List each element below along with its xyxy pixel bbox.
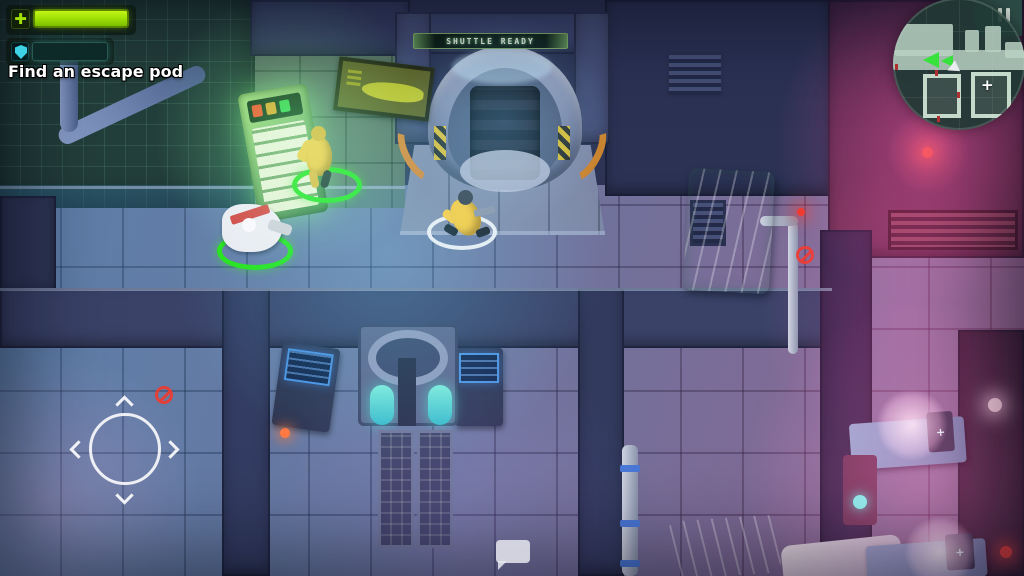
blue-tarp-crate (666, 514, 782, 576)
hazard-stripe-left (434, 126, 446, 160)
schematic-line (348, 69, 362, 74)
server-crate-left (271, 341, 340, 432)
monitor-light (853, 495, 867, 509)
minimap-door-marker (957, 92, 960, 98)
ship-schematic-display (333, 56, 435, 121)
wall-orange-light (280, 428, 290, 438)
shield-glyph (15, 45, 27, 59)
medbay-bed-2: + (865, 528, 992, 576)
wall-vertical-left (222, 288, 270, 576)
floor-grate-right (417, 430, 453, 548)
wall-top-mid (250, 0, 410, 56)
wall-vent-pink (888, 210, 1018, 250)
floor-grate-left (378, 430, 414, 548)
minimap-room-stub (965, 30, 979, 52)
hazard-stripe-right (558, 126, 570, 160)
green-tarp-crate (683, 168, 775, 294)
pipe-band (620, 520, 640, 527)
shuttle-ready-label: SHUTTLE READY (446, 37, 535, 46)
schematic-line (347, 75, 361, 80)
wall-vent (666, 52, 724, 98)
bed-pillow: + (926, 411, 955, 453)
wall-left-door (0, 196, 56, 296)
ship-silhouette (361, 79, 425, 104)
robot-sensor (242, 218, 256, 232)
virtual-joystick[interactable] (89, 413, 161, 485)
wall-vertical-right (578, 288, 624, 576)
medical-cross-label: + (955, 545, 965, 559)
game-viewport: SHUTTLE READY + + (0, 0, 1024, 576)
pipe-band (620, 560, 640, 567)
alarm-lamp-small (797, 208, 805, 216)
minimap-room-stub (985, 26, 1001, 52)
no-entry-icon (155, 386, 173, 404)
objective-marker-icon: + (981, 76, 994, 94)
player-character (436, 182, 494, 244)
server-grille (284, 348, 334, 386)
pipe-wall (788, 222, 798, 354)
plus-glyph: ✚ (14, 10, 27, 28)
player-hat (458, 190, 473, 205)
utility-robot (220, 196, 294, 258)
shield-bar (32, 42, 108, 61)
engineer-helmet (311, 126, 326, 141)
medbay-monitor (843, 455, 877, 525)
coolant-tank-right (428, 385, 452, 425)
minimap-door-marker (895, 64, 898, 70)
coolant-tank-left (370, 385, 394, 425)
shield-icon (11, 42, 29, 61)
player-arrow-icon (923, 52, 939, 68)
bright-wall-light (988, 398, 1002, 412)
no-entry-icon (796, 246, 814, 264)
shuttle-ready-sign: SHUTTLE READY (413, 33, 568, 49)
minimap-room-outline (923, 74, 961, 118)
console-amber-light (265, 102, 277, 116)
machine-channel (398, 358, 416, 426)
bed-pillow: + (945, 533, 975, 571)
alarm-lamp (922, 147, 933, 158)
schematic-line (346, 81, 360, 86)
server-grille (459, 353, 499, 383)
health-bar-fill (35, 11, 127, 26)
medical-cross-label: + (936, 425, 946, 439)
health-bar (33, 9, 129, 28)
minimap[interactable]: + (893, 0, 1024, 130)
plus-icon: ✚ (11, 9, 30, 29)
console-green-light (279, 99, 291, 113)
wall-top-right (605, 0, 830, 196)
minimap-room-stub (1005, 42, 1024, 58)
minimap-door-marker (937, 116, 940, 122)
server-crate-right (455, 348, 503, 426)
objective-text: Find an escape pod (8, 62, 183, 81)
console-red-light (251, 104, 263, 118)
minimap-door-marker (935, 70, 938, 76)
pod-canopy-shine (452, 50, 552, 84)
pipe-band (620, 465, 640, 472)
chat-bubble-icon[interactable] (496, 540, 530, 563)
alarm-lamp (1000, 546, 1012, 558)
engineer-character (298, 118, 342, 194)
